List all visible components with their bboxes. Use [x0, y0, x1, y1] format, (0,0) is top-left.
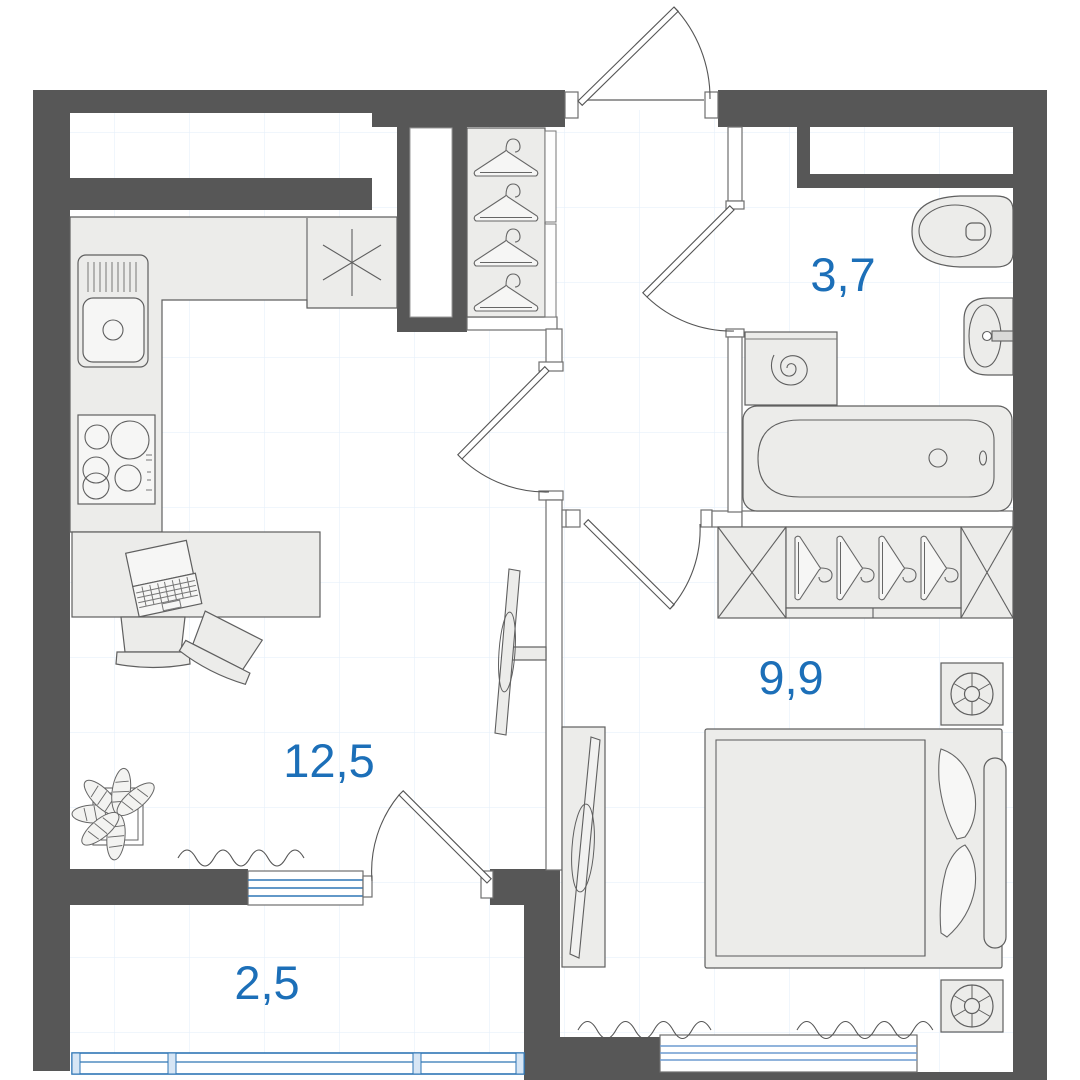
bedroom-wardrobe [718, 527, 1013, 618]
floor-plan-canvas: 3,7 9,9 12,5 2,5 [0, 0, 1080, 1080]
kitchen-sink [78, 255, 148, 367]
faucet-icon [983, 332, 992, 341]
balcony-glazing [72, 1053, 524, 1074]
bed [705, 729, 1006, 968]
bathtub [743, 406, 1012, 511]
tv-cabinet [562, 727, 605, 967]
entry-closet [467, 128, 556, 317]
toilet [912, 196, 1013, 267]
shaft-niche [410, 128, 452, 317]
entrance-door [578, 7, 710, 105]
balcony-area-label: 2,5 [234, 956, 299, 1009]
nightstand [941, 980, 1003, 1032]
headboard [984, 758, 1006, 948]
bedroom-window [660, 1035, 917, 1072]
living-balcony-window [248, 871, 363, 905]
chair [116, 617, 190, 668]
washing-machine [745, 332, 837, 405]
bedroom-area-label: 9,9 [758, 651, 823, 704]
nightstand [941, 663, 1003, 725]
bathroom-sink [964, 298, 1013, 375]
cooktop [78, 415, 155, 504]
bathroom-area-label: 3,7 [810, 248, 875, 301]
floor-plan: 3,7 9,9 12,5 2,5 [0, 0, 1080, 1080]
living-area-label: 12,5 [283, 734, 374, 787]
